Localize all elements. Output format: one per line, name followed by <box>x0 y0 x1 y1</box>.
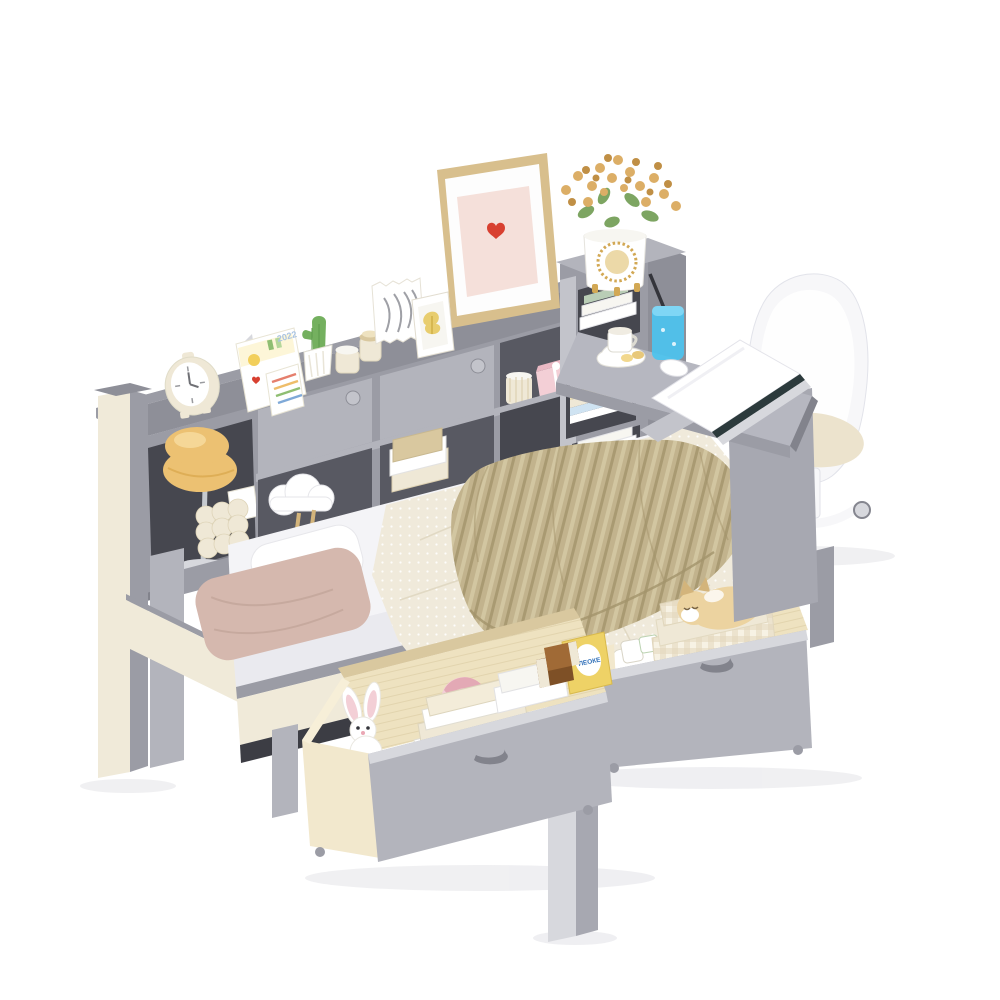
bed-leg-mid <box>272 724 298 818</box>
knit-candle <box>506 372 532 404</box>
drawer-caster <box>583 805 593 815</box>
door-knob-left <box>346 391 360 405</box>
drawer-caster <box>315 847 325 857</box>
drawer-caster <box>609 763 619 773</box>
color-chart-card <box>266 364 304 416</box>
headboard-post <box>98 390 130 778</box>
heart-art-frame <box>437 153 560 328</box>
small-art-frame <box>412 292 454 358</box>
drawer-side-wood <box>302 740 380 858</box>
scene-svg: 2022 <box>0 0 1000 1000</box>
desk-calendar: 2022 <box>236 328 306 416</box>
drawer-caster <box>793 745 803 755</box>
door-knob-right <box>471 359 485 373</box>
product-photo: 2022 <box>0 0 1000 1000</box>
